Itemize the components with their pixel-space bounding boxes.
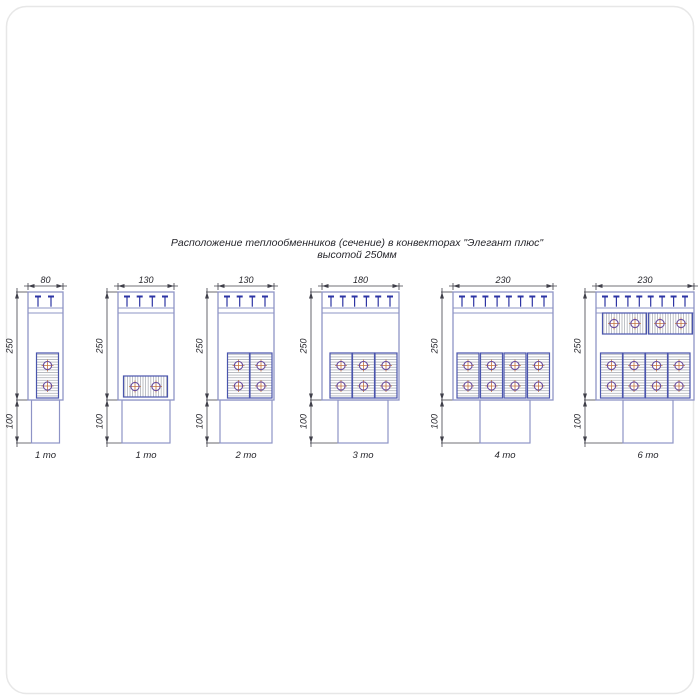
- diagram-230-4to: 230 250 100 4 то: [430, 275, 558, 461]
- diagram-180-3to: 180 250 100 3 то: [299, 275, 404, 461]
- heat-exchanger-block: [601, 353, 623, 398]
- air-duct: [122, 400, 170, 443]
- heat-exchanger-block: [646, 353, 668, 398]
- diagram-80-1to: 80 250 100 1 то: [5, 275, 68, 461]
- width-dim-label: 230: [494, 275, 510, 285]
- air-duct: [480, 400, 530, 443]
- air-duct: [623, 400, 673, 443]
- air-duct: [220, 400, 272, 443]
- diagram-130-1to: 130 250 100 1 то: [95, 275, 179, 461]
- heat-exchanger-block: [623, 353, 645, 398]
- heat-exchanger-block: [504, 353, 526, 398]
- air-duct: [338, 400, 388, 443]
- technical-drawing: Расположение теплообменников (сечение) в…: [0, 0, 700, 700]
- drawing-title-line2: высотой 250мм: [317, 249, 396, 261]
- heat-exchanger-block: [228, 353, 250, 398]
- height-dim-label: 250: [573, 338, 583, 354]
- height-dim-label: 250: [195, 338, 205, 354]
- duct-height-dim-label: 100: [430, 414, 440, 429]
- width-dim-label: 180: [353, 275, 368, 285]
- width-dim-label: 130: [238, 275, 253, 285]
- drawing-page: Расположение теплообменников (сечение) в…: [0, 0, 700, 700]
- unit-count-label: 1 то: [135, 450, 156, 461]
- heat-exchanger-block: [124, 376, 168, 397]
- duct-height-dim-label: 100: [95, 414, 105, 429]
- heat-exchanger-block: [353, 353, 375, 398]
- heat-exchanger-block: [37, 353, 59, 398]
- duct-height-dim-label: 100: [195, 414, 205, 429]
- width-dim-label: 230: [636, 275, 652, 285]
- unit-count-label: 6 то: [637, 450, 658, 461]
- heat-exchanger-block: [330, 353, 352, 398]
- diagram-130-2to: 130 250 100 2 то: [195, 275, 279, 461]
- duct-height-dim-label: 100: [5, 414, 15, 429]
- drawing-title-line1: Расположение теплообменников (сечение) в…: [171, 237, 545, 249]
- duct-height-dim-label: 100: [573, 414, 583, 429]
- width-dim-label: 80: [40, 275, 50, 285]
- heat-exchanger-block: [457, 353, 479, 398]
- height-dim-label: 250: [5, 338, 15, 354]
- diagram-230-6to: 230 250 100 6 то: [573, 275, 699, 461]
- heat-exchanger-block: [481, 353, 503, 398]
- air-duct: [32, 400, 60, 443]
- height-dim-label: 250: [299, 338, 309, 354]
- heat-exchanger-block: [603, 313, 647, 334]
- heat-exchanger-block: [250, 353, 272, 398]
- unit-count-label: 3 то: [352, 450, 373, 461]
- unit-count-label: 1 то: [35, 450, 56, 461]
- width-dim-label: 130: [138, 275, 153, 285]
- heat-exchanger-block: [375, 353, 397, 398]
- unit-count-label: 4 то: [494, 450, 515, 461]
- duct-height-dim-label: 100: [299, 414, 309, 429]
- unit-count-label: 2 то: [234, 450, 256, 461]
- heat-exchanger-block: [528, 353, 550, 398]
- height-dim-label: 250: [430, 338, 440, 354]
- height-dim-label: 250: [95, 338, 105, 354]
- heat-exchanger-block: [668, 353, 690, 398]
- heat-exchanger-block: [649, 313, 693, 334]
